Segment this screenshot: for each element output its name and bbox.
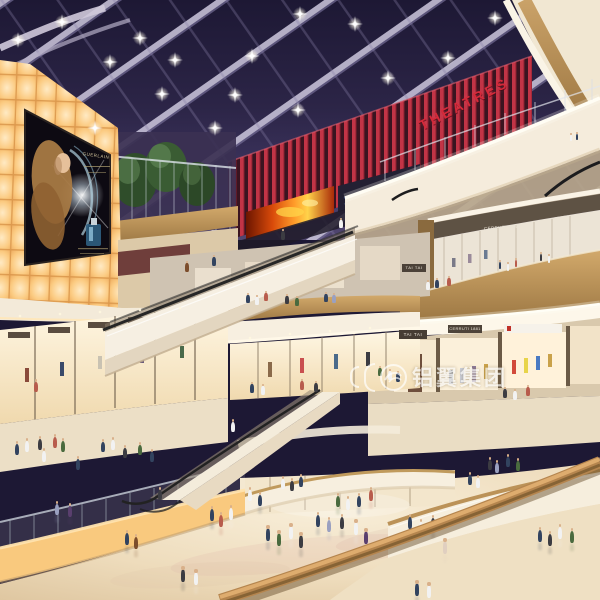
watermark: 铝翼集团 [350,358,508,396]
tai-tai-sign-lower: TAI TAI [399,330,427,339]
watermark-arc-icon [364,363,375,392]
watermark-text: 铝翼集团 [412,362,508,392]
watermark-wing-logo-icon [380,364,407,391]
cerruti-sign-lower: CERRUTI 1881 [448,325,482,333]
rooftop-terrace-trees [108,132,238,244]
mall-atrium-scene: THEATRES CERRUTI 1881 TAI TAI TAI TAI CE… [0,0,600,600]
watermark-arc-icon [350,366,359,388]
scene-base-render [0,0,600,600]
tai-tai-sign-upper: TAI TAI [402,264,426,272]
